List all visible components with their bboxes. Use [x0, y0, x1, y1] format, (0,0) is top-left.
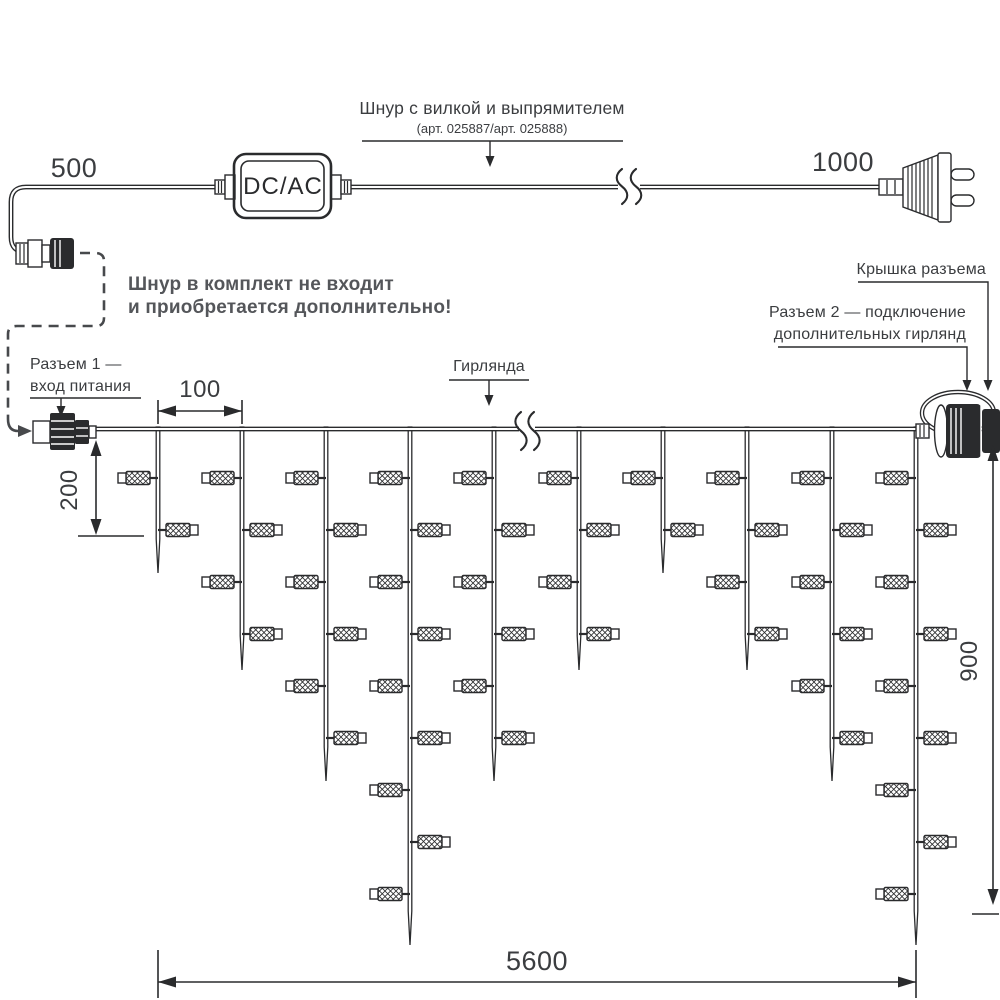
led-light — [876, 576, 916, 589]
led-light — [370, 680, 410, 693]
led-light — [370, 888, 410, 901]
connector1-power-input — [33, 413, 96, 450]
led-light — [454, 576, 494, 589]
led-light — [370, 576, 410, 589]
led-light — [876, 784, 916, 797]
led-light — [832, 732, 872, 745]
led-light — [663, 524, 703, 537]
led-light — [202, 472, 242, 485]
garland-drop — [370, 427, 450, 945]
cord-subtitle: (арт. 025887/арт. 025888) — [417, 121, 568, 136]
dimension-100: 100 — [158, 376, 242, 424]
garland-drop — [623, 427, 703, 573]
led-light — [370, 472, 410, 485]
led-light — [792, 680, 832, 693]
cord-title: Шнур с вилкой и выпрямителем — [359, 98, 624, 118]
led-light — [623, 472, 663, 485]
led-light — [494, 524, 534, 537]
led-light — [747, 524, 787, 537]
led-light — [410, 628, 450, 641]
connector2-label-line1: Разъем 2 — подключение — [769, 304, 966, 321]
connector2-callout: Разъем 2 — подключение дополнительных ги… — [769, 304, 972, 391]
connector1-label-line2: вход питания — [30, 378, 131, 395]
led-light — [494, 732, 534, 745]
garland-drop — [876, 427, 956, 945]
garland-drop — [454, 427, 534, 781]
led-light — [707, 576, 747, 589]
led-light — [326, 524, 366, 537]
led-light — [454, 680, 494, 693]
led-light — [707, 472, 747, 485]
dim-900-label: 900 — [956, 640, 983, 682]
power-cord-section: DC/AC — [11, 98, 974, 269]
led-light — [916, 732, 956, 745]
garland-label: Гирлянда — [453, 358, 525, 375]
cord-end-connector — [16, 238, 74, 269]
garland-drop — [707, 427, 787, 670]
power-plug — [879, 150, 974, 225]
led-light — [286, 472, 326, 485]
led-light — [916, 524, 956, 537]
led-light — [876, 472, 916, 485]
led-light — [242, 524, 282, 537]
dashed-path-arrow — [18, 425, 32, 437]
garland-main-wire — [94, 412, 926, 450]
led-light — [158, 524, 198, 537]
led-light — [454, 472, 494, 485]
led-light — [326, 732, 366, 745]
dim-5600-label: 5600 — [506, 946, 568, 976]
connector1-label-line1: Разъем 1 — — [30, 356, 122, 373]
cord-break-mark — [617, 169, 628, 204]
dimension-5600: 5600 — [158, 946, 916, 998]
led-light — [876, 680, 916, 693]
led-light — [579, 628, 619, 641]
led-light — [792, 576, 832, 589]
led-light — [326, 628, 366, 641]
garland-drop — [792, 427, 872, 781]
led-light — [747, 628, 787, 641]
led-light — [286, 680, 326, 693]
note-line2: и приобретается дополнительно! — [128, 297, 452, 318]
garland-drop — [202, 427, 282, 670]
dim-500-label: 500 — [51, 153, 98, 183]
led-light — [242, 628, 282, 641]
dcac-label: DC/AC — [243, 173, 323, 200]
dim-200-label: 200 — [56, 469, 83, 511]
connector2-label-line2: дополнительных гирлянд — [774, 326, 967, 343]
led-light — [202, 576, 242, 589]
dim-1000-label: 1000 — [812, 147, 874, 177]
led-light — [494, 628, 534, 641]
led-light — [792, 472, 832, 485]
dcac-converter: DC/AC — [215, 154, 351, 218]
cap-label: Крышка разъема — [857, 261, 986, 278]
garland-schematic-diagram: DC/AC — [0, 0, 1000, 1000]
led-light — [410, 836, 450, 849]
cord-title-arrow — [486, 156, 495, 167]
led-light — [370, 784, 410, 797]
led-light — [832, 628, 872, 641]
led-light — [579, 524, 619, 537]
garland-drop — [118, 427, 198, 573]
note-line1: Шнур в комплект не входит — [128, 274, 394, 295]
connector2-extension — [916, 392, 1000, 458]
led-light — [539, 472, 579, 485]
not-included-note: Шнур в комплект не входит и приобретаетс… — [128, 274, 452, 318]
led-light — [876, 888, 916, 901]
diagram-page: DC/AC — [0, 0, 1000, 1000]
dimension-900: 900 — [956, 445, 999, 914]
led-light — [410, 524, 450, 537]
garland-drop — [286, 427, 366, 781]
dimension-200: 200 — [56, 440, 144, 536]
garland-drop — [539, 427, 619, 670]
dim-100-label: 100 — [179, 376, 221, 403]
led-light — [916, 836, 956, 849]
dashed-connection-path — [8, 253, 104, 437]
connector1-callout: Разъем 1 — вход питания — [30, 356, 141, 417]
led-light — [410, 732, 450, 745]
led-light — [286, 576, 326, 589]
garland-callout: Гирлянда — [449, 358, 529, 406]
led-light — [118, 472, 158, 485]
garland-drops — [118, 427, 956, 945]
led-light — [832, 524, 872, 537]
led-light — [916, 628, 956, 641]
led-light — [539, 576, 579, 589]
